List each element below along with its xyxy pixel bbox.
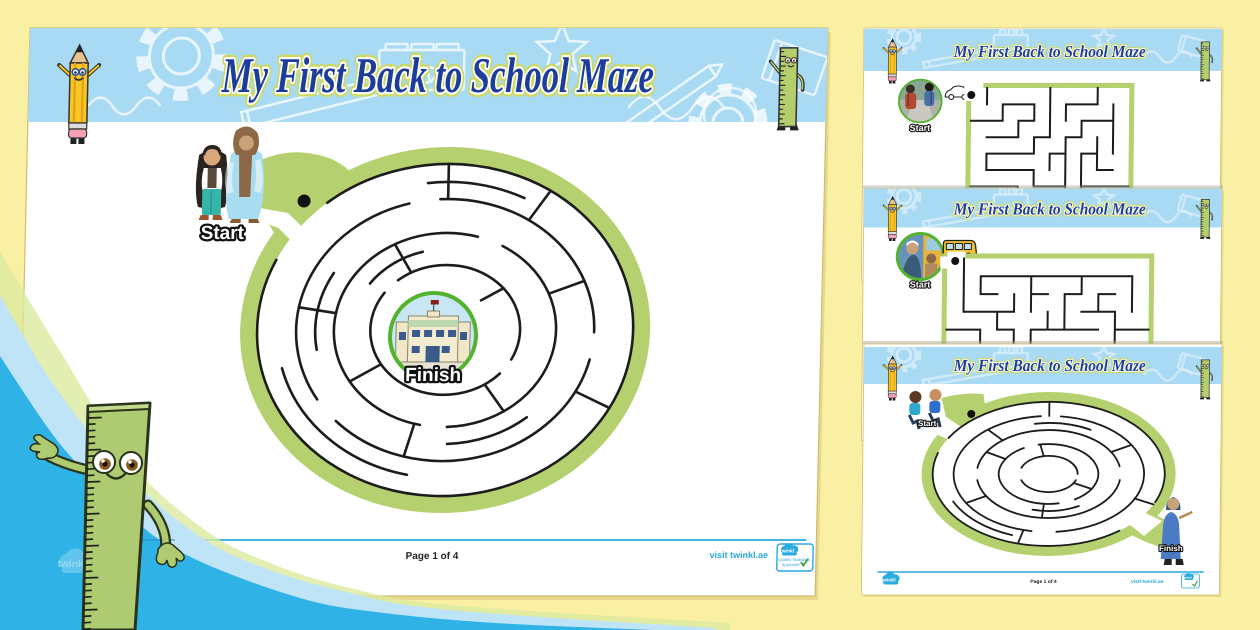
- svg-text:Start: Start: [910, 123, 931, 133]
- svg-text:My First Back to School Maze: My First Back to School Maze: [953, 42, 1147, 61]
- svg-text:approved: approved: [782, 562, 800, 567]
- svg-text:Start: Start: [918, 419, 937, 428]
- svg-text:twinkl: twinkl: [780, 549, 795, 555]
- svg-text:visit twinkl.ae: visit twinkl.ae: [1131, 579, 1164, 585]
- svg-text:twinkl: twinkl: [881, 578, 896, 584]
- svg-text:Start: Start: [200, 223, 244, 244]
- svg-text:Page 1 of 4: Page 1 of 4: [405, 551, 458, 562]
- svg-text:Finish: Finish: [1159, 544, 1183, 553]
- svg-text:My First Back to School Maze: My First Back to School Maze: [953, 356, 1147, 375]
- svg-text:Page 1 of 4: Page 1 of 4: [1030, 579, 1057, 585]
- svg-text:My First Back to School Maze: My First Back to School Maze: [221, 47, 655, 103]
- svg-text:My First Back to School Maze: My First Back to School Maze: [953, 200, 1147, 219]
- svg-text:Finish: Finish: [405, 365, 461, 386]
- svg-text:visit twinkl.ae: visit twinkl.ae: [709, 550, 768, 560]
- svg-text:Start: Start: [910, 280, 931, 290]
- svg-text:twinkl: twinkl: [1184, 575, 1192, 579]
- svg-text:twinkl: twinkl: [58, 559, 87, 570]
